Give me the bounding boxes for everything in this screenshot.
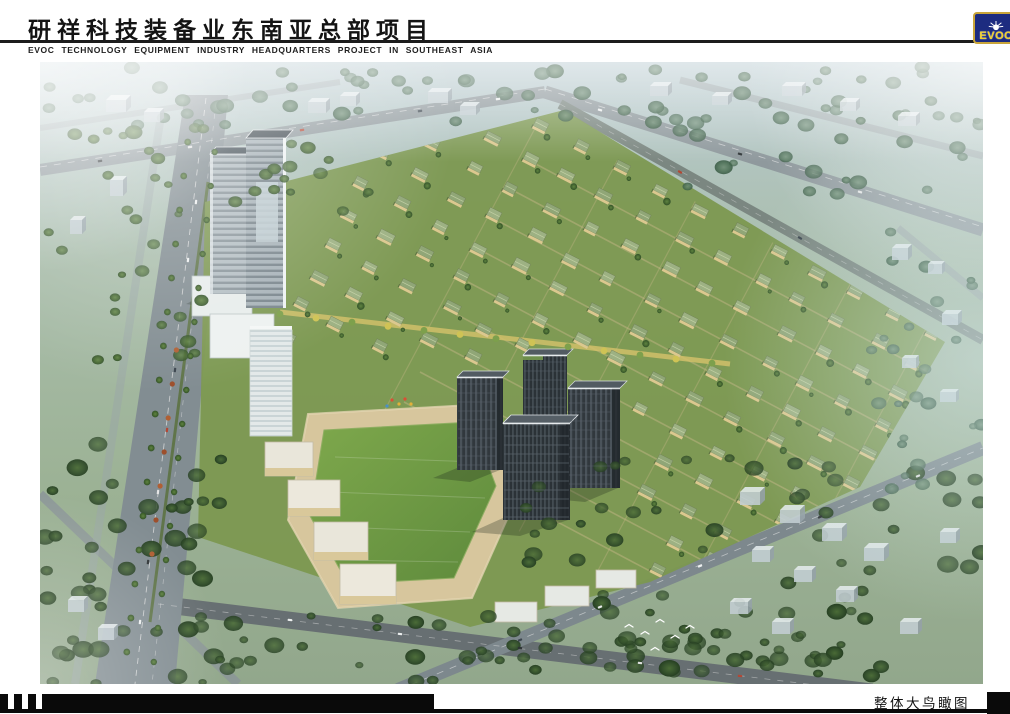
presentation-board: 研祥科技装备业东南亚总部项目 EVOC TECHNOLOGY EQUIPMENT… xyxy=(0,0,1010,714)
footer-rule xyxy=(0,709,1010,713)
footer-corner-block xyxy=(987,692,1010,714)
evoc-logo: EVOC xyxy=(973,12,1010,44)
title-divider xyxy=(0,40,983,43)
page-subtitle: EVOC TECHNOLOGY EQUIPMENT INDUSTRY HEADQ… xyxy=(28,45,493,55)
logo-wordmark: EVOC xyxy=(979,30,1010,42)
drawing-caption: 整体大鸟瞰图 xyxy=(874,692,970,712)
aerial-rendering-image xyxy=(40,62,983,684)
